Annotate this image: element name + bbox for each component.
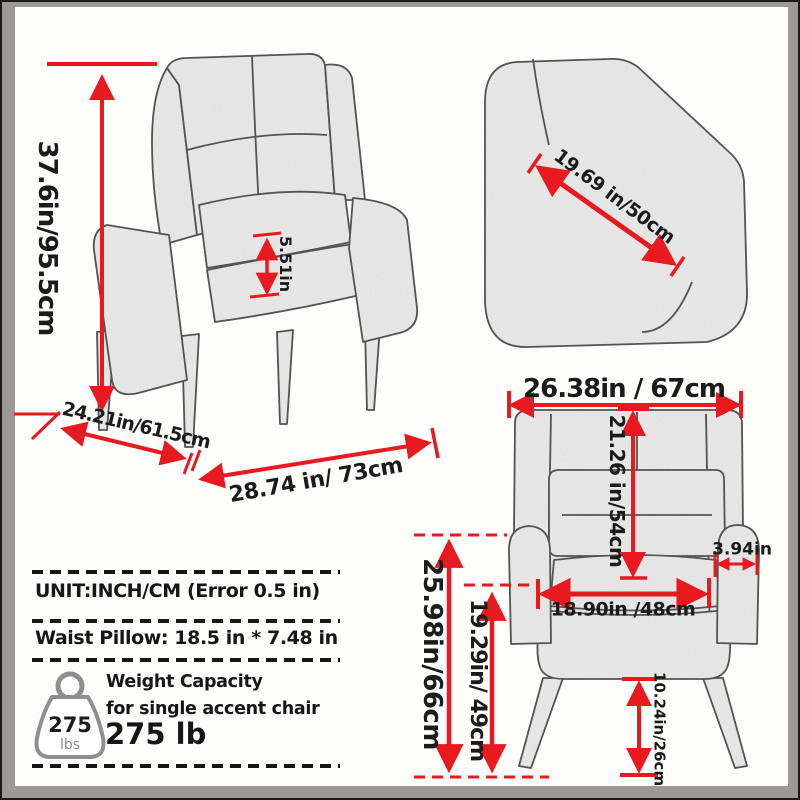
divider-dashed <box>32 619 340 623</box>
back-diagonal-dimension <box>528 154 684 276</box>
leg-height-label: 10.24in/26cm <box>652 672 667 786</box>
arm-height-label: 25.98in/66cm <box>419 558 445 750</box>
overall-height-label: 37.6in/95.5cm <box>34 141 60 336</box>
seat-height-label: 19.29in/ 49cm <box>466 599 488 761</box>
divider-dashed <box>32 764 340 768</box>
seat-width-label: 18.90in /48cm <box>551 601 696 620</box>
waist-pillow-note: Waist Pillow: 18.5 in * 7.48 in <box>35 628 338 650</box>
top-width-label: 26.38in / 67cm <box>523 376 725 402</box>
divider-dashed <box>32 658 340 662</box>
weight-kettlebell-icon: 275 lbs <box>32 670 108 764</box>
seat-thickness-label: 5.51in <box>277 236 293 292</box>
weight-icon-value: 275 <box>48 713 92 737</box>
unit-note: UNIT:INCH/CM (Error 0.5 in) <box>35 581 320 603</box>
diagram-paper: 37.6in/95.5cm 5.51in 24.21in/61.5cm 28.7… <box>15 7 788 786</box>
dimension-diagram: 37.6in/95.5cm 5.51in 24.21in/61.5cm 28.7… <box>0 0 800 800</box>
armrest-width-label: 3.94in <box>712 542 772 559</box>
weight-capacity-title: Weight Capacity <box>106 672 263 692</box>
weight-icon-unit: lbs <box>60 737 80 753</box>
backrest-height-label: 21.26 in/54cm <box>607 415 627 568</box>
divider-dashed <box>32 570 340 574</box>
weight-capacity-value: 275 lb <box>105 718 206 751</box>
